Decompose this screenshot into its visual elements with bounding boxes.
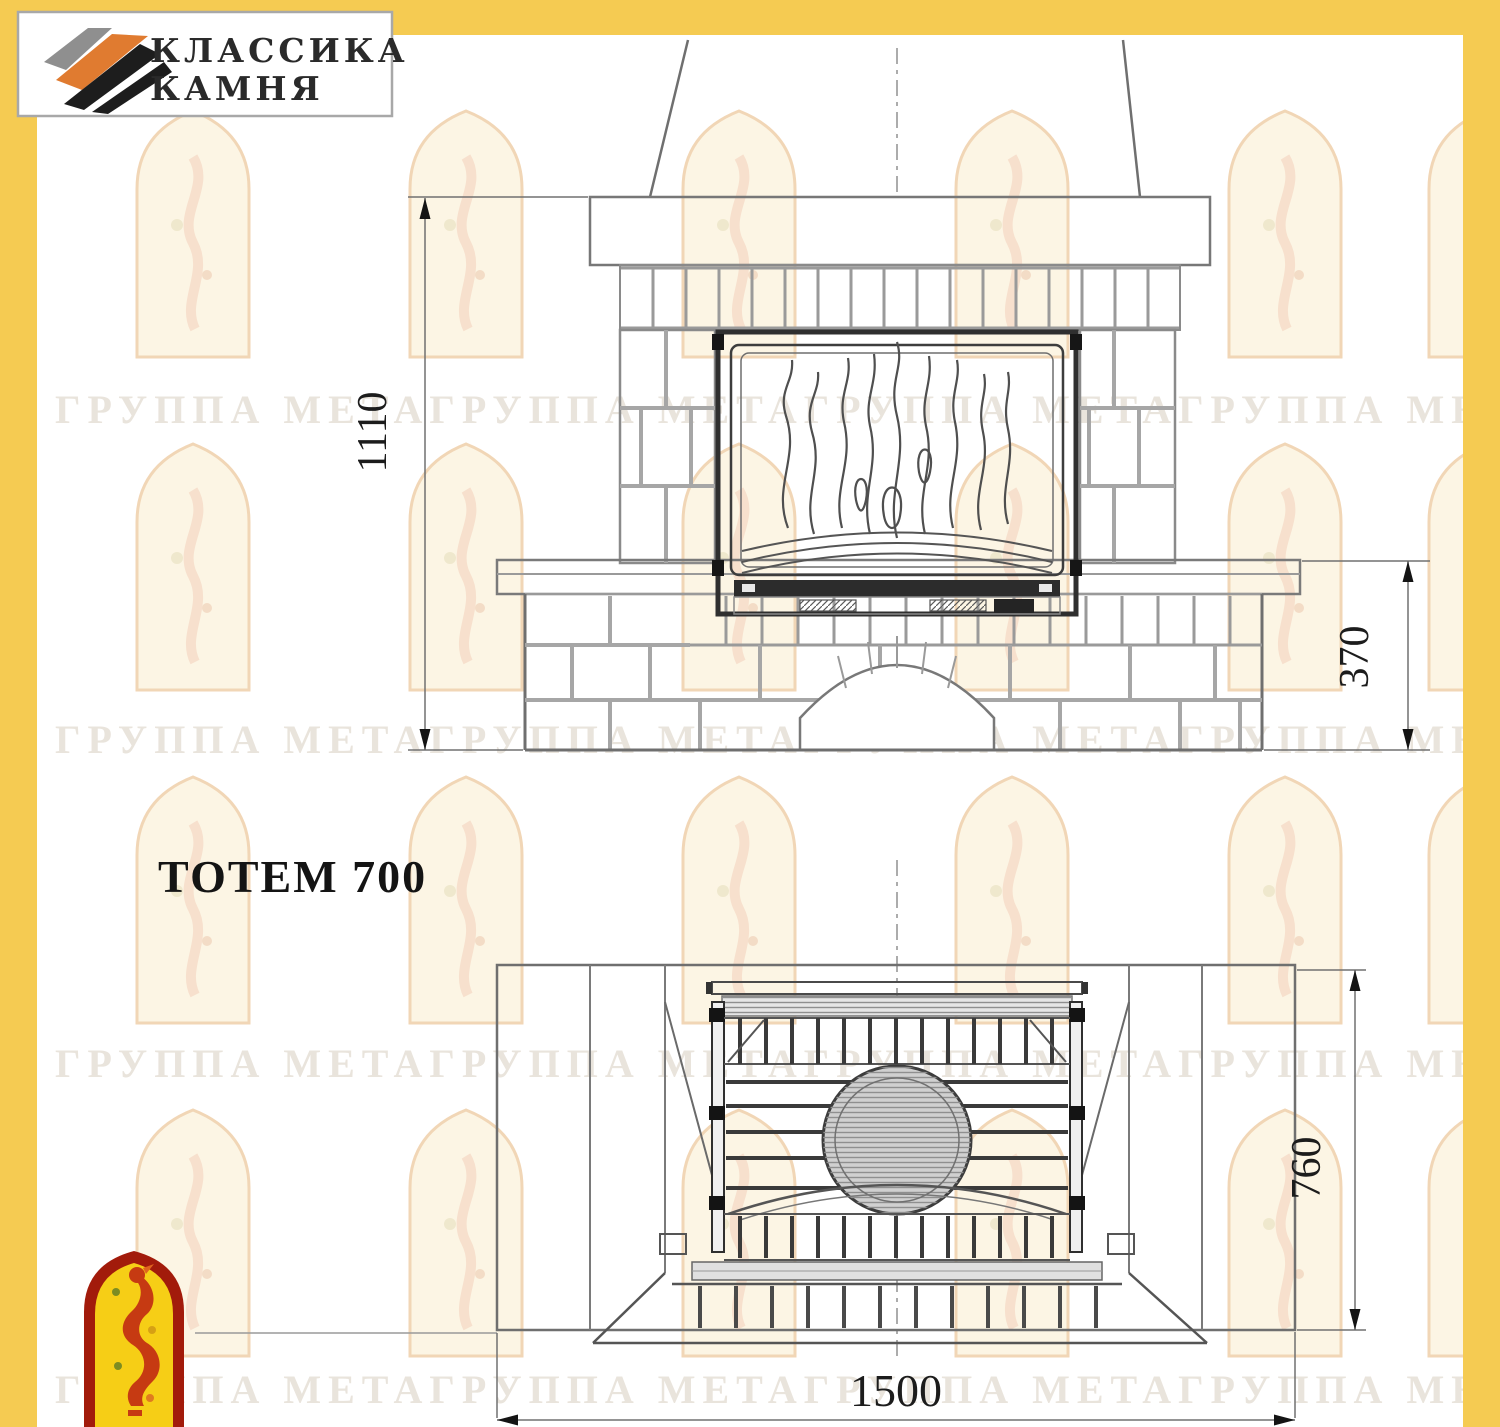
product-title: ТОТЕМ 700: [158, 851, 427, 902]
brand-name-line2: КАМНЯ: [150, 69, 324, 108]
insert-grille-band: [734, 580, 1060, 597]
watermark-text: ГРУППА МЕТАГРУППА МЕТАГРУППА МЕТАГРУППА …: [55, 387, 1500, 432]
catalog-page: ГРУППА МЕТАГРУППА МЕТАГРУППА МЕТАГРУППА …: [0, 0, 1500, 1427]
dimension-height-base: 370: [1332, 626, 1378, 689]
vent-grille: [930, 600, 986, 611]
dimension-width: 1500: [850, 1365, 942, 1416]
watermark-text: ГРУППА МЕТАГРУППА МЕТАГРУППА МЕТАГРУППА …: [55, 1367, 1500, 1412]
right-border-band: [1463, 0, 1500, 1427]
brand-logo: КЛАССИКА КАМНЯ: [18, 12, 409, 116]
vent-grille: [800, 600, 856, 611]
dimension-depth: 760: [1284, 1137, 1330, 1200]
left-border-band: [0, 0, 37, 1427]
dimension-height-total: 1110: [350, 392, 396, 473]
brand-name-line1: КЛАССИКА: [150, 31, 409, 70]
watermark-text: ГРУППА МЕТАГРУППА МЕТАГРУППА МЕТАГРУППА …: [55, 717, 1500, 762]
firebird-logo-icon: [84, 1251, 184, 1427]
insert-nameplate: [994, 599, 1034, 613]
fireplace-drawing: ГРУППА МЕТАГРУППА МЕТАГРУППА МЕТАГРУППА …: [0, 0, 1500, 1427]
